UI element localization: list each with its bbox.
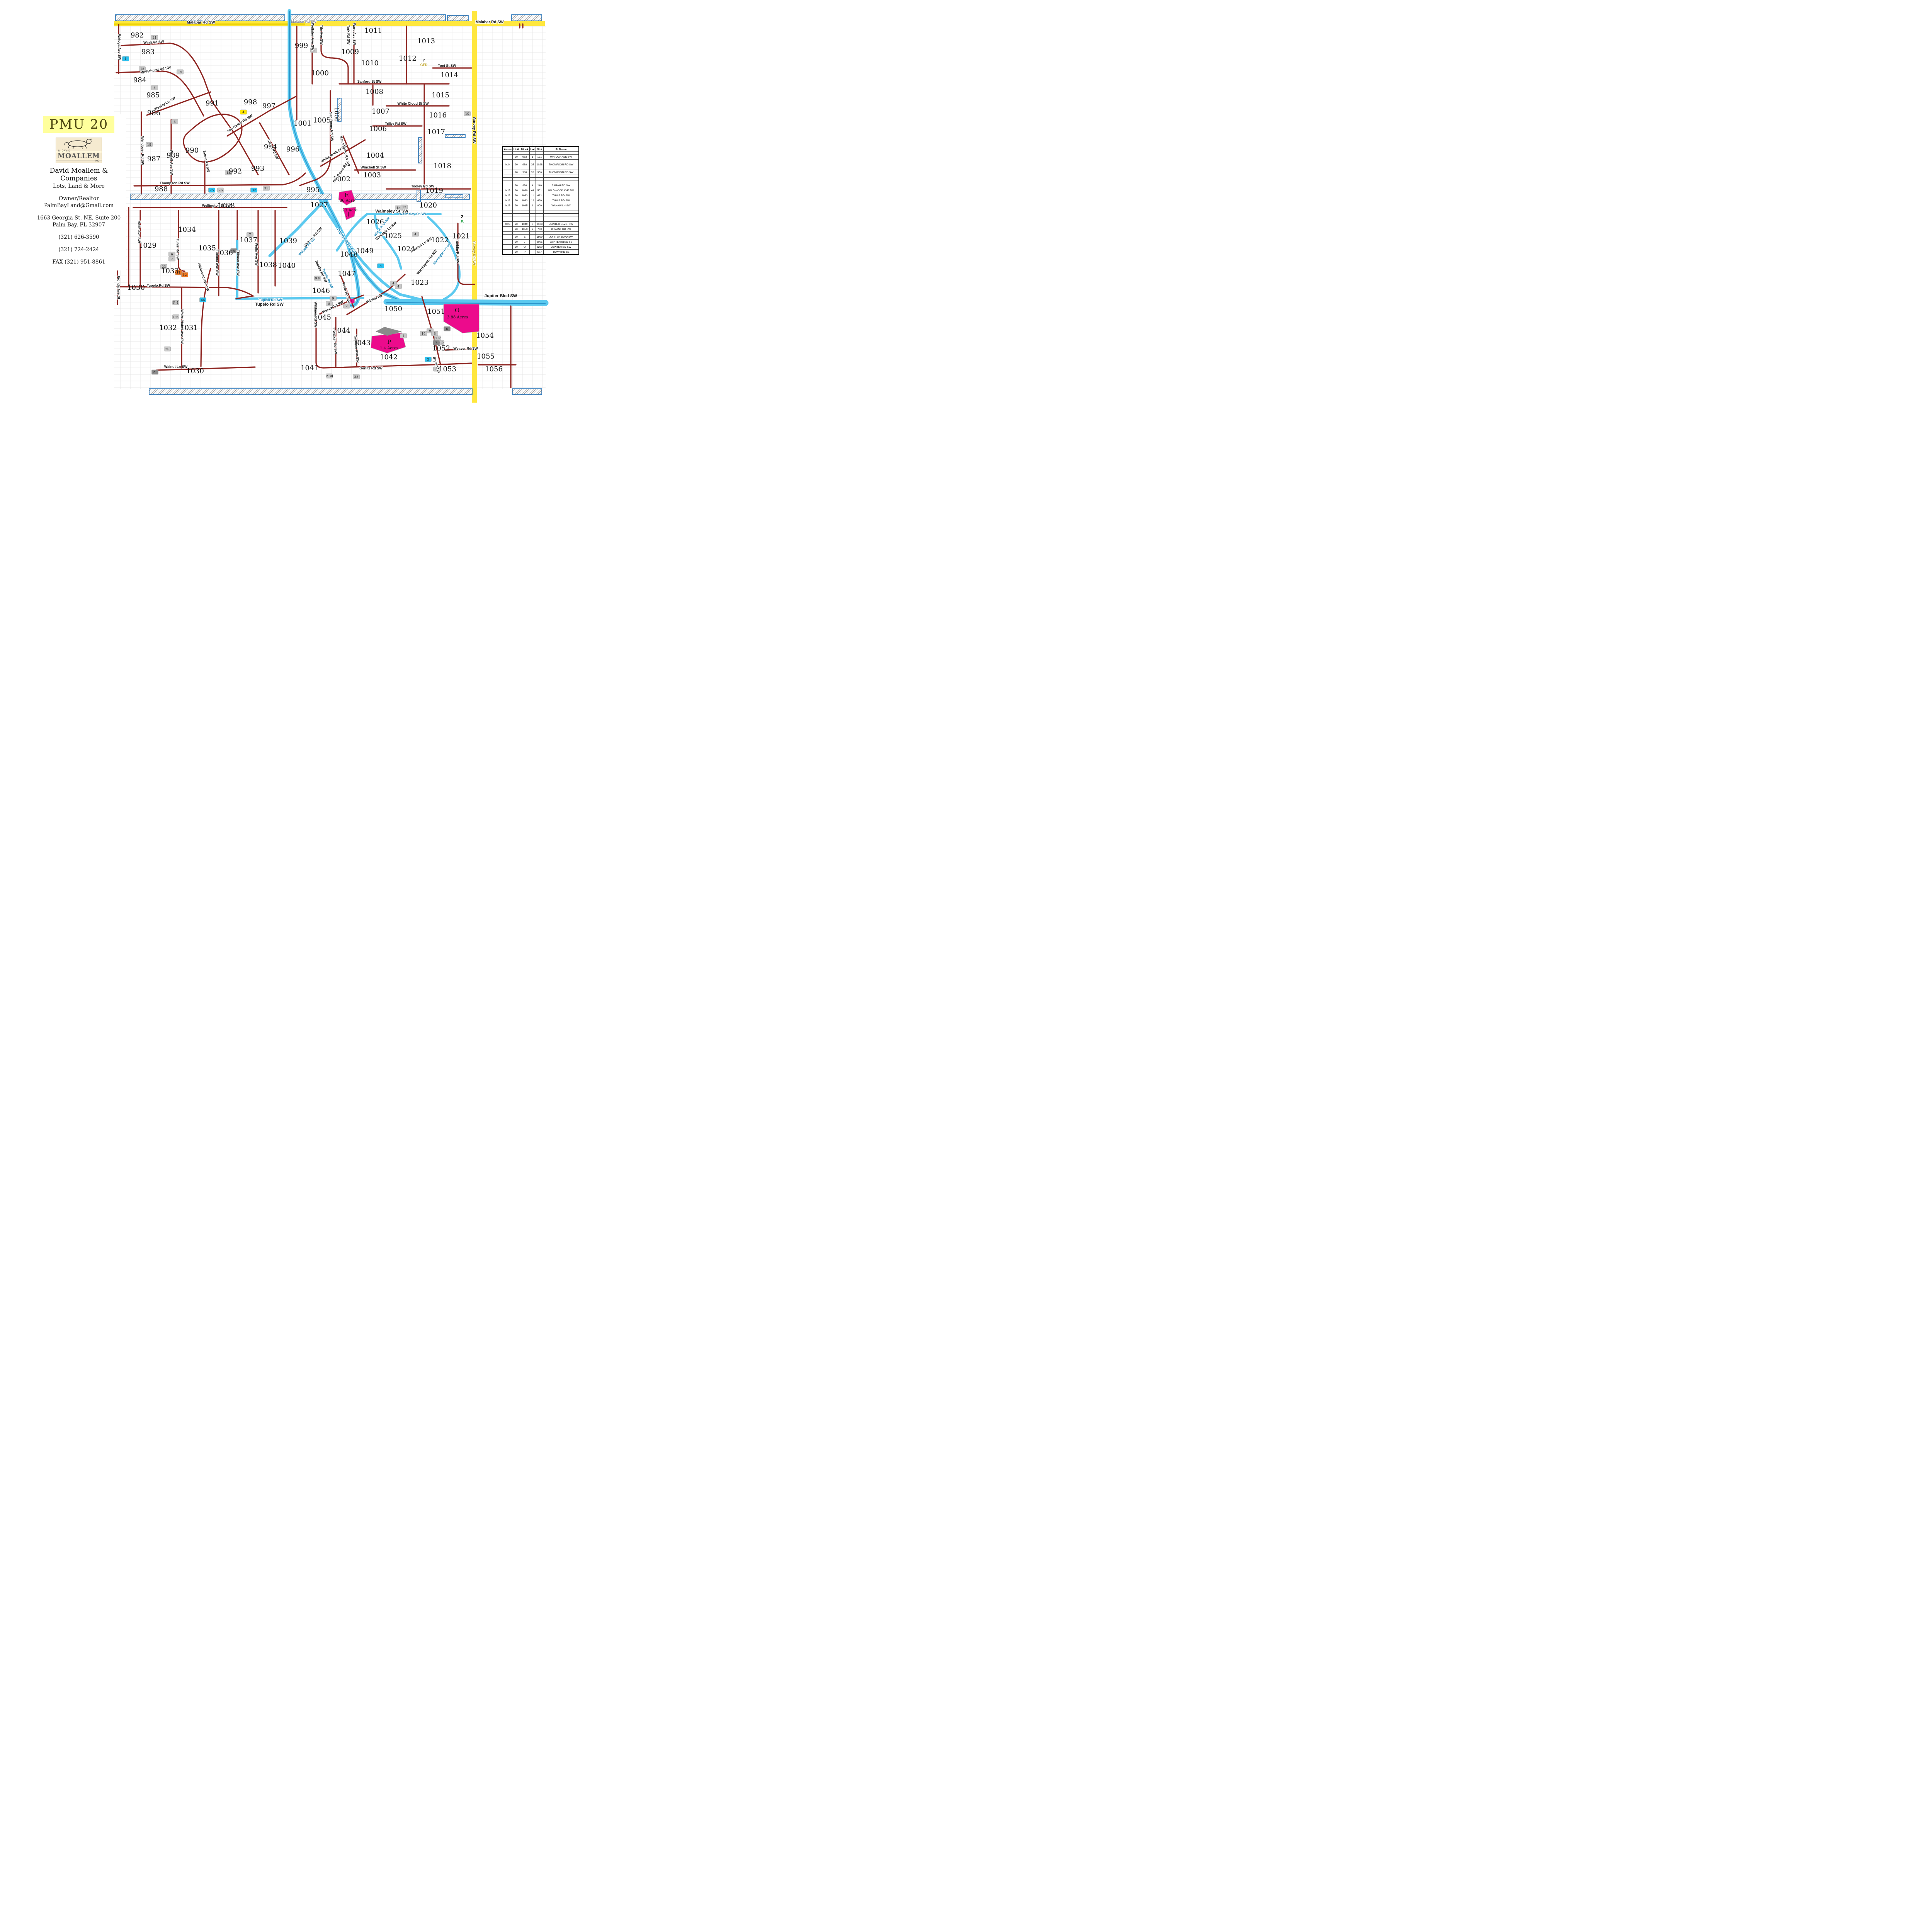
table-cell xyxy=(520,216,529,219)
table-spacer-row xyxy=(503,232,579,235)
table-cell xyxy=(529,175,536,178)
table-cell: 0.26 xyxy=(503,203,513,208)
table-cell: THOMPSON RD SW xyxy=(543,162,579,167)
lot-marker-gray-2: 2 xyxy=(344,304,350,308)
table-row: 20P577TOWN RD SE xyxy=(503,250,579,255)
street-label-malabar-rd-sw: Malabar Rd SW xyxy=(187,20,215,25)
table-cell xyxy=(513,211,520,214)
lot-number: 7 P xyxy=(435,337,440,340)
block-label-1033: 1033 xyxy=(161,267,179,275)
fax: FAX (321) 951-8861 xyxy=(32,259,126,265)
table-cell: 1028 xyxy=(536,162,543,167)
table-cell xyxy=(503,216,513,219)
block-label-1006: 1006 xyxy=(333,107,340,122)
lot-J-acreage: .23 Acre xyxy=(341,208,358,213)
lot-number: 25 xyxy=(210,189,214,192)
block-label-1030: 1030 xyxy=(127,284,145,292)
table-row: 20J2001JUPITER BLVD SE xyxy=(503,240,579,245)
phone-2: (321) 724-2424 xyxy=(32,247,126,253)
street-label-malabar-rd-sw: Malabar Rd SW xyxy=(476,20,504,24)
lot-marker-darkgray-21: 21 xyxy=(152,370,158,374)
lot-number: 4 xyxy=(242,111,244,114)
block-label-1006: 1006 xyxy=(369,125,387,133)
street-label-winchell-st-sw: Winchell St SW xyxy=(361,165,386,169)
table-row: 0.2320103312490TUNIS RD SW xyxy=(503,198,579,203)
street-label-white-cloud-st-sw: White Cloud St SW xyxy=(398,102,429,105)
misc-label-S: S xyxy=(461,219,464,224)
lot-number: P 6 xyxy=(173,315,179,319)
table-cell: WATOGA AVE SW xyxy=(543,155,579,160)
lot-number: 6 xyxy=(446,327,448,331)
table-cell xyxy=(543,152,579,155)
lot-number: 6 xyxy=(171,253,173,257)
lot-marker-cyan-8: 8 xyxy=(378,264,384,268)
lot-marker-gray-1: 1 xyxy=(400,333,407,338)
table-header-st-: St # xyxy=(536,146,543,152)
lot-marker-gray-6: 6 xyxy=(169,252,175,257)
table-cell xyxy=(536,219,543,222)
block-label-1009: 1009 xyxy=(341,48,359,56)
table-cell xyxy=(529,235,536,240)
lot-marker-cyan-1: 1 xyxy=(122,56,129,61)
block-label-1030: 1030 xyxy=(186,367,204,375)
block-label-1054: 1054 xyxy=(476,332,494,340)
block-label-1050: 1050 xyxy=(384,305,402,313)
lot-marker-gray-8: 8 xyxy=(432,331,438,336)
lot-O-label: O xyxy=(455,307,459,314)
lot-number: 8 xyxy=(328,302,330,306)
table-cell: J xyxy=(520,240,529,245)
lot-marker-gray-P30: P 30 xyxy=(325,374,333,378)
lot-number: 15 xyxy=(178,70,182,74)
street-label-turk-rd-sw: Turk Rd SW xyxy=(347,25,350,45)
table-cell xyxy=(503,227,513,232)
table-cell: 20 xyxy=(513,245,520,250)
table-spacer-row xyxy=(503,216,579,219)
table-cell xyxy=(529,178,536,180)
table-cell: 956 xyxy=(536,170,543,175)
block-label-1041: 1041 xyxy=(301,364,318,372)
lot-number: 8 xyxy=(434,332,435,336)
table-cell: 0.25 xyxy=(503,188,513,193)
table-cell xyxy=(503,219,513,222)
block-label-1046: 1046 xyxy=(312,287,330,295)
table-header-lot: Lot xyxy=(529,146,536,152)
street-label-tupelo-rd-sw: Tupelo Rd SW xyxy=(259,298,282,302)
table-cell xyxy=(520,208,529,211)
street-label-wellington-st-sw: Wellington St SW xyxy=(202,204,231,207)
table-cell: O xyxy=(520,245,529,250)
lot-number: 9 xyxy=(429,329,431,333)
block-label-1008: 1008 xyxy=(366,88,383,96)
table-cell xyxy=(520,175,529,178)
table-cell xyxy=(513,216,520,219)
table-cell: 1045 xyxy=(520,203,529,208)
table-cell xyxy=(543,211,579,214)
table-cell xyxy=(536,178,543,180)
table-cell xyxy=(529,211,536,214)
table-cell xyxy=(543,208,579,211)
block-label-991: 991 xyxy=(206,99,219,107)
table-header-st-name: St Name xyxy=(543,146,579,152)
block-label-1020: 1020 xyxy=(419,201,437,209)
table-cell: 32 xyxy=(529,170,536,175)
table-cell xyxy=(520,211,529,214)
table-cell: 2001 xyxy=(536,240,543,245)
lot-marker-orange-12: 12 xyxy=(182,272,188,277)
block-label-1039: 1039 xyxy=(279,237,297,245)
email: PalmBayLand@Gmail.com xyxy=(32,202,126,209)
table-cell xyxy=(503,208,513,211)
info-sidebar: PMU 20 M DAVID MOALLEM INC David Moallem… xyxy=(32,114,126,270)
table-cell xyxy=(529,214,536,216)
table-spacer-row xyxy=(503,175,579,178)
table-spacer-row xyxy=(503,211,579,214)
pmu-badge: PMU 20 xyxy=(43,116,114,133)
table-cell xyxy=(543,214,579,216)
table-cell: 25 xyxy=(529,162,536,167)
lot-number: 4 xyxy=(414,233,416,236)
lot-marker-gray-4: 4 xyxy=(395,284,402,289)
lot-marker-cyan-2: 2 xyxy=(425,357,432,362)
table-row: 209831191WATOGA AVE SW xyxy=(503,155,579,160)
table-cell xyxy=(529,245,536,250)
lot-marker-gray-35: 35 xyxy=(353,374,360,379)
table-cell: THOMPSON RD SW xyxy=(543,170,579,175)
block-label-1032: 1032 xyxy=(159,324,177,332)
table-cell: 1 xyxy=(529,155,536,160)
street-label-toni-st-sw: Toni St SW xyxy=(438,64,456,68)
block-label-1011: 1011 xyxy=(364,27,382,35)
lot-number: 8 xyxy=(379,264,381,268)
table-row: 0.2320103311482TUNIS RD SW xyxy=(503,193,579,198)
lot-marker-gray-P6: P 6 xyxy=(173,315,179,319)
table-cell: WILDWOOD AVE SW xyxy=(543,188,579,193)
lot-number: P 4 xyxy=(173,301,179,305)
table-cell xyxy=(536,208,543,211)
easement-hatch-fill-6 xyxy=(149,389,472,395)
lot-P-acreage: 1.4 Acres xyxy=(380,346,398,350)
street-label-garvey-rd-sw: Garvey Rd SW xyxy=(472,117,476,144)
table-cell: 983 xyxy=(520,155,529,160)
table-cell: 800 xyxy=(536,203,543,208)
lot-marker-yellow-4: 4 xyxy=(240,110,247,114)
table-cell: 1030 xyxy=(520,188,529,193)
table-spacer-row xyxy=(503,152,579,155)
lot-marker-gray-7: 7 xyxy=(169,257,175,261)
table-spacer-row xyxy=(503,208,579,211)
parcel-table: AcresUnitBlockLotSt #St Name 209831191WA… xyxy=(502,146,579,255)
block-label-1007: 1007 xyxy=(372,107,389,116)
table-cell xyxy=(536,232,543,235)
lot-O-acreage: 3.88 Acres xyxy=(447,315,468,320)
table-cell: 482 xyxy=(536,193,543,198)
table-cell: 988 xyxy=(520,162,529,167)
table-cell xyxy=(513,178,520,180)
table-cell: JUPITER BD SW xyxy=(543,245,579,250)
block-label-996: 996 xyxy=(286,145,299,153)
lot-marker-gray-26: 26 xyxy=(218,188,224,192)
block-label-1035: 1035 xyxy=(198,244,216,252)
lot-number: 3 xyxy=(173,120,175,124)
table-cell: 20 xyxy=(513,193,520,198)
table-cell xyxy=(543,180,579,183)
table-cell: 1033 xyxy=(520,193,529,198)
lot-number: 4 xyxy=(392,282,394,286)
street-label-walnut-ln-sw: Walnut Ln SW xyxy=(164,365,188,369)
table-cell xyxy=(503,178,513,180)
table-cell: 577 xyxy=(536,250,543,255)
table-cell: 20 xyxy=(513,155,520,160)
road-tupelo-rd-sw-canal xyxy=(236,298,363,299)
table-cell xyxy=(529,167,536,170)
table-cell xyxy=(520,180,529,183)
lot-marker-gray-18: 18 xyxy=(146,142,153,147)
block-label-1001: 1001 xyxy=(294,119,311,128)
block-label-1014: 1014 xyxy=(440,71,458,79)
table-cell xyxy=(520,152,529,155)
table-row: 2098832956THOMPSON RD SW xyxy=(503,170,579,175)
map-document: E.36 AcreJ.23 AcreO3.88 AcresP1.4 Acres … xyxy=(0,0,612,417)
table-cell xyxy=(529,208,536,211)
lot-number: 14 xyxy=(422,332,426,336)
street-label-watoga-ave-sw: Watoga Ave SW xyxy=(117,34,121,60)
table-cell: TUNIS RD SW xyxy=(543,193,579,198)
table-cell: 1999 xyxy=(536,235,543,240)
lot-number: 3 xyxy=(153,86,155,90)
easement-hatch-fill-9 xyxy=(418,138,422,163)
street-label-white-plains-ave-sw: White Plains Ave SW xyxy=(180,310,184,344)
table-cell xyxy=(536,214,543,216)
table-cell: E xyxy=(520,235,529,240)
table-cell: 191 xyxy=(536,155,543,160)
lot-marker-gray-35: 35 xyxy=(263,186,270,190)
table-cell xyxy=(513,219,520,222)
street-label-holin-ave-sw: Holin Ave SW xyxy=(137,221,141,243)
table-cell: 988 xyxy=(520,170,529,175)
table-cell xyxy=(529,216,536,219)
table-cell xyxy=(536,160,543,162)
table-row: 0.2520103044501WILDWOOD AVE SW xyxy=(503,188,579,193)
table-cell: 20 xyxy=(513,170,520,175)
street-label-tupelo-rd-sw: Tupelo Rd SW xyxy=(147,284,170,287)
table-cell xyxy=(503,211,513,214)
address-line2: Palm Bay, FL 32907 xyxy=(32,222,126,228)
table-cell xyxy=(513,232,520,235)
block-label-998: 998 xyxy=(244,98,257,106)
table-header-block: Block xyxy=(520,146,529,152)
street-label-wildmer-rd-sw: Wildmer Rd SW xyxy=(314,302,318,328)
table-spacer-row xyxy=(503,167,579,170)
table-cell xyxy=(503,180,513,183)
block-label-1017: 1017 xyxy=(427,128,445,136)
street-label-wellsley-ave-sw: Wellsley Ave SW xyxy=(311,23,315,51)
block-label-995: 995 xyxy=(306,186,320,194)
block-label-1016: 1016 xyxy=(429,111,447,119)
company-name: David Moallem & Companies xyxy=(32,167,126,182)
phone-1: (321) 626-3590 xyxy=(32,234,126,240)
lot-number: 44 xyxy=(201,298,205,302)
block-label-1015: 1015 xyxy=(432,91,449,99)
lot-E-acreage: .36 Acre xyxy=(338,199,355,203)
table-cell: TUNIS RD SW xyxy=(543,198,579,203)
table-spacer-row xyxy=(503,180,579,183)
lot-number: 18 xyxy=(147,143,151,147)
easement-hatch-fill-3 xyxy=(512,15,542,21)
table-cell xyxy=(536,211,543,214)
table-cell: SARAH RD SW xyxy=(543,183,579,188)
lion-icon xyxy=(56,138,101,150)
table-row: 0.2320104982108JUPITER BLVD. SW xyxy=(503,222,579,227)
table-cell xyxy=(529,180,536,183)
table-spacer-row xyxy=(503,219,579,222)
lot-number: 35 xyxy=(354,375,359,379)
table-cell xyxy=(503,214,513,216)
block-label-997: 997 xyxy=(262,102,276,110)
table-cell: 20 xyxy=(513,183,520,188)
table-cell: 20 xyxy=(513,250,520,255)
table-cell xyxy=(543,160,579,162)
table-cell xyxy=(536,152,543,155)
table-cell: JUPITER BLVD SE xyxy=(543,240,579,245)
block-label-1053: 1053 xyxy=(439,365,456,373)
owner-realtor: Owner/Realtor xyxy=(32,196,126,202)
block-label-990: 990 xyxy=(185,146,199,155)
table-cell: 2250 xyxy=(536,245,543,250)
table-cell xyxy=(503,245,513,250)
block-label-1004: 1004 xyxy=(366,151,384,160)
table-cell: 20 xyxy=(513,240,520,245)
easement-hatch-fill-10 xyxy=(417,190,420,202)
table-cell xyxy=(513,208,520,211)
street-label-jupiter-blcd-sw: Jupiter Blcd SW xyxy=(485,294,517,298)
street-label-tile-ave-sw: Tile Ave SW xyxy=(320,25,323,45)
table-cell xyxy=(543,232,579,235)
street-label-winfall-ave-sw: Winfall Ave SW xyxy=(170,150,173,175)
street-label-weaver-rd-sw: Weaver Rd SW xyxy=(453,347,478,350)
block-label-983: 983 xyxy=(141,48,155,56)
table-cell xyxy=(543,219,579,222)
table-cell xyxy=(529,250,536,255)
lot-number: 26 xyxy=(219,189,223,192)
table-row: 20E1999JUPITER BLVD SW xyxy=(503,235,579,240)
table-cell xyxy=(513,160,520,162)
table-cell xyxy=(536,216,543,219)
table-cell: WAKAW LN SW xyxy=(543,203,579,208)
block-label-1042: 1042 xyxy=(380,353,398,361)
lot-marker-cyan-32: 32 xyxy=(251,188,257,192)
table-cell xyxy=(503,152,513,155)
street-label-wells-ave-sw: Wells Ave SW xyxy=(255,243,259,266)
table-cell xyxy=(513,175,520,178)
table-cell: JUPITER BLVD SW xyxy=(543,235,579,240)
street-label-gerlitz-rd-sw: Gerlitz Rd SW xyxy=(359,366,383,370)
table-cell xyxy=(543,178,579,180)
lot-number: 2 xyxy=(345,304,347,308)
lot-number: 21 xyxy=(153,36,157,40)
block-label-1055: 1055 xyxy=(477,352,495,361)
logo-inc: INC xyxy=(95,160,99,162)
lot-marker-gray-10: 10 xyxy=(464,111,471,116)
lot-number: 9 xyxy=(332,297,334,301)
lot-number: 8 xyxy=(233,249,235,253)
street-label-tooley-rd-sw: Tooley Rd SW xyxy=(411,184,434,188)
block-label-1047: 1047 xyxy=(338,270,355,278)
table-cell: 20 xyxy=(513,227,520,232)
block-label-1040: 1040 xyxy=(278,262,296,270)
table-row: 2010532700BRYANT RD SW xyxy=(503,227,579,232)
block-label-987: 987 xyxy=(147,155,160,163)
lot-number: 9 P xyxy=(315,277,320,281)
address-line1: 1663 Georgia St. NE, Suite 200 xyxy=(32,215,126,221)
block-label-1056: 1056 xyxy=(485,365,503,373)
table-spacer-row xyxy=(503,214,579,216)
block-label-988: 988 xyxy=(155,185,168,193)
easement-hatch-fill-4 xyxy=(130,194,331,199)
logo-moallem: MOALLEM xyxy=(56,152,102,160)
table-cell: 1033 xyxy=(520,198,529,203)
table-row: 0.2420988251028THOMPSON RD SW xyxy=(503,162,579,167)
moallem-logo: M DAVID MOALLEM INC xyxy=(56,138,102,163)
easement-hatch-fill-2 xyxy=(447,15,468,21)
lot-E-label: E xyxy=(345,192,349,199)
table-cell: 501 xyxy=(536,188,543,193)
table-cell: 20 xyxy=(513,222,520,227)
table-cell xyxy=(503,240,513,245)
street-label-walmsley-st-sw: Walmsley St SW xyxy=(399,212,426,216)
lot-number: P 30 xyxy=(325,374,333,378)
table-cell xyxy=(513,214,520,216)
block-label-1021: 1021 xyxy=(452,232,470,240)
street-label-ware-ave-sw: Ware Ave SW xyxy=(352,23,356,45)
easement-hatch-fill-7 xyxy=(512,389,542,395)
street-label-wendover-rd-sw: Wendover Rd SW xyxy=(141,136,145,165)
lot-marker-gray-9P: 9 P xyxy=(315,276,321,281)
lot-number: 2 xyxy=(427,358,429,362)
table-cell xyxy=(520,219,529,222)
table-cell: 20 xyxy=(513,162,520,167)
block-label-984: 984 xyxy=(133,76,146,84)
lot-marker-gray-7P: 7 P xyxy=(435,336,441,340)
lot-number: 35 xyxy=(264,187,269,190)
table-cell: 0.23 xyxy=(503,193,513,198)
block-label-985: 985 xyxy=(146,91,160,99)
table-header-unit: Unit xyxy=(513,146,520,152)
block-label-1022: 1022 xyxy=(431,236,449,244)
lot-number: 7 xyxy=(171,257,173,261)
lot-marker-cyan-25: 25 xyxy=(209,188,215,192)
lot-marker-gray-3: 3 xyxy=(172,119,178,124)
lot-number: 4 xyxy=(397,285,399,289)
table-cell xyxy=(503,183,513,188)
block-label-1012: 1012 xyxy=(399,54,417,63)
table-cell xyxy=(503,167,513,170)
street-label-fronda-ave-st: Fronda Ave St xyxy=(117,276,121,299)
block-label-993: 993 xyxy=(251,165,264,173)
table-cell xyxy=(529,160,536,162)
block-label-992: 992 xyxy=(229,167,242,175)
lot-number: 20 xyxy=(165,347,170,351)
lot-marker-gray-9: 9 xyxy=(330,296,337,301)
table-row: 0.262010451800WAKAW LN SW xyxy=(503,203,579,208)
table-cell: 700 xyxy=(536,227,543,232)
table-cell: 0.23 xyxy=(503,222,513,227)
street-label-garvey-rd-sw: Garvey Rd SW xyxy=(472,241,476,265)
table-spacer-row xyxy=(503,160,579,162)
block-label-986: 986 xyxy=(147,109,160,117)
street-label-tunis-rd-sw: Tunis Rd SW xyxy=(176,239,180,260)
table-header-acres: Acres xyxy=(503,146,513,152)
